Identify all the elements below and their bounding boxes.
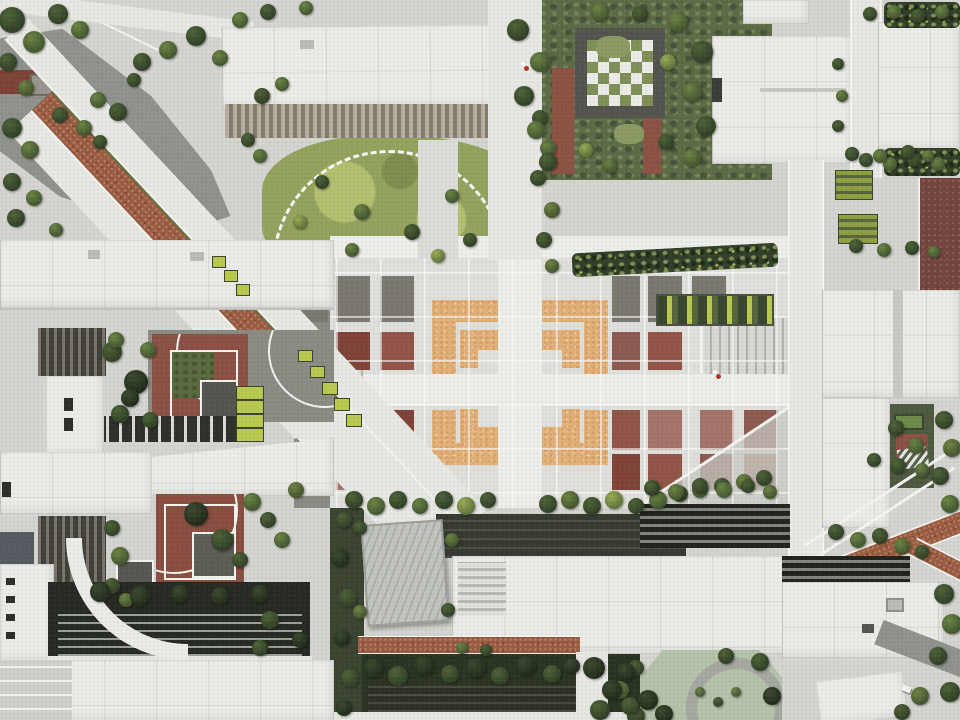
tree bbox=[718, 648, 734, 664]
tree bbox=[388, 666, 408, 686]
tree bbox=[539, 153, 557, 171]
tree bbox=[859, 153, 873, 167]
tree bbox=[76, 120, 92, 136]
tree bbox=[133, 53, 151, 71]
tree bbox=[605, 491, 623, 509]
tree bbox=[253, 149, 267, 163]
tree bbox=[121, 389, 139, 407]
tree bbox=[414, 656, 434, 676]
roof-slit bbox=[6, 614, 15, 621]
tree bbox=[315, 175, 329, 189]
tree bbox=[211, 587, 229, 605]
tree bbox=[186, 26, 206, 46]
tree bbox=[872, 528, 888, 544]
tree bbox=[2, 118, 22, 138]
tree bbox=[109, 103, 127, 121]
building-roof-west-mid bbox=[0, 452, 152, 514]
tree bbox=[241, 133, 255, 147]
tree bbox=[894, 538, 910, 554]
tree bbox=[751, 653, 769, 671]
building-roof-west-slab bbox=[0, 240, 334, 310]
tree bbox=[658, 134, 674, 150]
tree bbox=[873, 149, 887, 163]
tree bbox=[942, 614, 960, 634]
planter-box bbox=[212, 256, 226, 268]
pavilion-ledge bbox=[760, 88, 846, 92]
tree bbox=[260, 512, 276, 528]
tree bbox=[404, 224, 420, 240]
tree bbox=[184, 502, 208, 526]
tree bbox=[211, 529, 233, 551]
tree bbox=[668, 484, 684, 500]
tree bbox=[93, 135, 107, 149]
tree bbox=[345, 243, 359, 257]
tree bbox=[911, 687, 929, 705]
tree bbox=[288, 482, 304, 498]
tree bbox=[456, 642, 468, 654]
tree bbox=[130, 586, 150, 606]
tree bbox=[334, 630, 350, 646]
tree bbox=[583, 497, 601, 515]
tree bbox=[832, 58, 844, 70]
rooftop-unit bbox=[886, 598, 904, 612]
tree bbox=[292, 632, 308, 648]
tree bbox=[660, 54, 676, 70]
tree bbox=[731, 687, 741, 697]
tree bbox=[915, 545, 929, 559]
planter-box bbox=[236, 400, 264, 414]
tree bbox=[579, 143, 593, 157]
tree bbox=[832, 120, 844, 132]
brick-path-south bbox=[358, 636, 580, 654]
tree bbox=[354, 204, 370, 220]
tree bbox=[544, 202, 560, 218]
building-roof-west-diagonal bbox=[140, 438, 334, 496]
moss-patch bbox=[614, 124, 644, 144]
person-dot-highlight bbox=[713, 370, 717, 374]
beam-roof-south bbox=[640, 504, 790, 548]
tree bbox=[261, 611, 279, 629]
tree bbox=[691, 41, 713, 63]
tree bbox=[232, 552, 248, 568]
planter-box bbox=[236, 414, 264, 428]
planter-box bbox=[334, 398, 350, 411]
tree bbox=[52, 107, 68, 123]
tree bbox=[716, 482, 732, 498]
tree bbox=[111, 405, 129, 423]
tree bbox=[341, 669, 359, 687]
dark-louver-southeast bbox=[782, 556, 910, 584]
building-south-louvers bbox=[458, 562, 506, 616]
dark-roof-navy bbox=[0, 532, 34, 564]
tree bbox=[336, 700, 352, 716]
tree bbox=[935, 5, 949, 19]
tree bbox=[590, 700, 610, 720]
tree bbox=[480, 492, 496, 508]
tree bbox=[491, 667, 509, 685]
tree bbox=[877, 243, 891, 257]
tree bbox=[104, 520, 120, 536]
tree bbox=[539, 495, 557, 513]
tree bbox=[339, 589, 357, 607]
planter-bench-row bbox=[656, 294, 774, 326]
tree bbox=[431, 249, 445, 263]
tree bbox=[940, 682, 960, 702]
tree bbox=[353, 521, 367, 535]
tree bbox=[251, 585, 269, 603]
tree bbox=[867, 453, 881, 467]
tree bbox=[3, 173, 21, 191]
tree bbox=[602, 680, 622, 700]
metal-roof-south bbox=[361, 519, 450, 626]
tree bbox=[49, 223, 63, 237]
tree bbox=[713, 697, 723, 707]
tree bbox=[254, 88, 270, 104]
tree bbox=[530, 52, 550, 72]
tree bbox=[252, 640, 268, 656]
tree bbox=[836, 90, 848, 102]
tree bbox=[457, 497, 475, 515]
parking-stripes bbox=[0, 660, 72, 720]
tree bbox=[127, 73, 141, 87]
tree bbox=[915, 463, 929, 477]
tree bbox=[171, 585, 189, 603]
pavilion-roof-northeast bbox=[712, 36, 852, 164]
tree bbox=[260, 4, 276, 20]
building-north-louvers bbox=[225, 104, 501, 138]
tree bbox=[941, 495, 959, 513]
tree bbox=[928, 246, 940, 258]
tree bbox=[756, 470, 772, 486]
skylight-louvers-west bbox=[38, 328, 106, 376]
tree bbox=[159, 41, 177, 59]
building-roof-maroon bbox=[918, 178, 960, 292]
planter-box bbox=[322, 382, 338, 395]
planter-box bbox=[835, 170, 873, 200]
building-roof-topright bbox=[878, 22, 960, 150]
tree bbox=[561, 491, 579, 509]
tree bbox=[668, 12, 688, 32]
tree bbox=[0, 7, 25, 33]
tree bbox=[212, 50, 228, 66]
tree bbox=[108, 332, 124, 348]
tree bbox=[514, 86, 534, 106]
tree bbox=[943, 439, 960, 457]
tree bbox=[516, 656, 536, 676]
tree bbox=[111, 547, 129, 565]
tree bbox=[243, 493, 261, 511]
tree bbox=[632, 6, 648, 22]
tree bbox=[863, 7, 877, 21]
tree bbox=[543, 665, 561, 683]
tree bbox=[682, 82, 702, 102]
tree bbox=[908, 438, 924, 454]
tree bbox=[545, 259, 559, 273]
path-east-vertical bbox=[788, 160, 824, 560]
planter-box bbox=[346, 414, 362, 427]
tree bbox=[763, 485, 777, 499]
tree bbox=[90, 92, 106, 108]
tree bbox=[695, 687, 705, 697]
tree bbox=[23, 31, 45, 53]
planter-box bbox=[224, 270, 238, 282]
tree bbox=[591, 3, 609, 21]
roof-slit bbox=[6, 632, 15, 639]
rooftop-unit bbox=[190, 252, 204, 261]
tree bbox=[644, 480, 660, 496]
tree bbox=[507, 19, 529, 41]
tree bbox=[583, 657, 605, 679]
tree bbox=[763, 687, 781, 705]
tree bbox=[441, 603, 455, 617]
planter-box bbox=[236, 284, 250, 296]
tree bbox=[922, 150, 934, 162]
roof-slit bbox=[64, 418, 73, 431]
roof-slit bbox=[6, 596, 15, 603]
building-east-gap bbox=[893, 290, 903, 398]
tree bbox=[90, 582, 110, 602]
tree bbox=[849, 239, 863, 253]
tree bbox=[683, 149, 701, 167]
tree bbox=[445, 533, 459, 547]
tree bbox=[692, 478, 708, 494]
tree bbox=[911, 9, 925, 23]
tree bbox=[621, 697, 639, 715]
tree bbox=[367, 497, 385, 515]
courtyard-dark-square bbox=[200, 380, 238, 418]
tree bbox=[140, 342, 156, 358]
tree bbox=[628, 498, 644, 514]
tree bbox=[929, 647, 947, 665]
tree bbox=[603, 159, 617, 173]
roof-slit bbox=[6, 578, 15, 585]
rooftop-unit bbox=[300, 40, 314, 49]
tree bbox=[564, 658, 580, 674]
tree bbox=[389, 491, 407, 509]
tree bbox=[850, 532, 866, 548]
tree bbox=[934, 584, 954, 604]
tree bbox=[353, 605, 367, 619]
tree bbox=[905, 241, 919, 255]
tree bbox=[696, 116, 716, 136]
tree bbox=[299, 1, 313, 15]
tree bbox=[142, 412, 158, 428]
tree bbox=[894, 704, 910, 720]
tree bbox=[435, 491, 453, 509]
tree bbox=[527, 121, 545, 139]
rooftop-unit-dark bbox=[862, 624, 874, 633]
moss-patch bbox=[596, 36, 630, 58]
tree bbox=[536, 232, 552, 248]
tree bbox=[463, 233, 477, 247]
tree bbox=[901, 145, 915, 159]
tree bbox=[232, 12, 248, 28]
planter-box bbox=[298, 350, 313, 362]
tree bbox=[935, 411, 953, 429]
roof-slit bbox=[64, 398, 73, 411]
tree bbox=[336, 512, 352, 528]
tree bbox=[274, 532, 290, 548]
tree bbox=[890, 458, 906, 474]
pavilion-door-notch bbox=[712, 78, 722, 102]
planter-box bbox=[236, 386, 264, 400]
tree bbox=[845, 147, 859, 161]
tree bbox=[887, 5, 901, 19]
planter-box bbox=[310, 366, 325, 378]
person-dot bbox=[524, 66, 529, 71]
tree bbox=[275, 77, 289, 91]
tree bbox=[480, 644, 492, 656]
roof-slit bbox=[2, 482, 11, 497]
tree bbox=[655, 705, 673, 720]
tree bbox=[48, 4, 68, 24]
tree bbox=[412, 498, 428, 514]
person-dot bbox=[716, 374, 721, 379]
tree bbox=[364, 658, 384, 678]
tree bbox=[530, 170, 546, 186]
tree bbox=[71, 21, 89, 39]
person-dot-highlight bbox=[521, 62, 525, 66]
tree bbox=[931, 467, 949, 485]
tree bbox=[441, 665, 459, 683]
tree bbox=[466, 658, 486, 678]
tree bbox=[741, 479, 755, 493]
tower-roof-west bbox=[46, 376, 104, 456]
tree bbox=[345, 491, 363, 509]
tree bbox=[445, 189, 459, 203]
tree bbox=[617, 663, 635, 681]
planter-box bbox=[236, 428, 264, 442]
tree bbox=[21, 141, 39, 159]
tree bbox=[18, 80, 34, 96]
tree bbox=[7, 209, 25, 227]
tree bbox=[828, 524, 844, 540]
pavilion-stub bbox=[743, 0, 809, 24]
tree bbox=[331, 549, 349, 567]
tree bbox=[638, 690, 658, 710]
building-roof-east bbox=[822, 290, 960, 398]
tree bbox=[293, 215, 307, 229]
aerial-campus-photo bbox=[0, 0, 960, 720]
rooftop-unit bbox=[88, 250, 100, 259]
tree bbox=[26, 190, 42, 206]
tree bbox=[888, 420, 904, 436]
